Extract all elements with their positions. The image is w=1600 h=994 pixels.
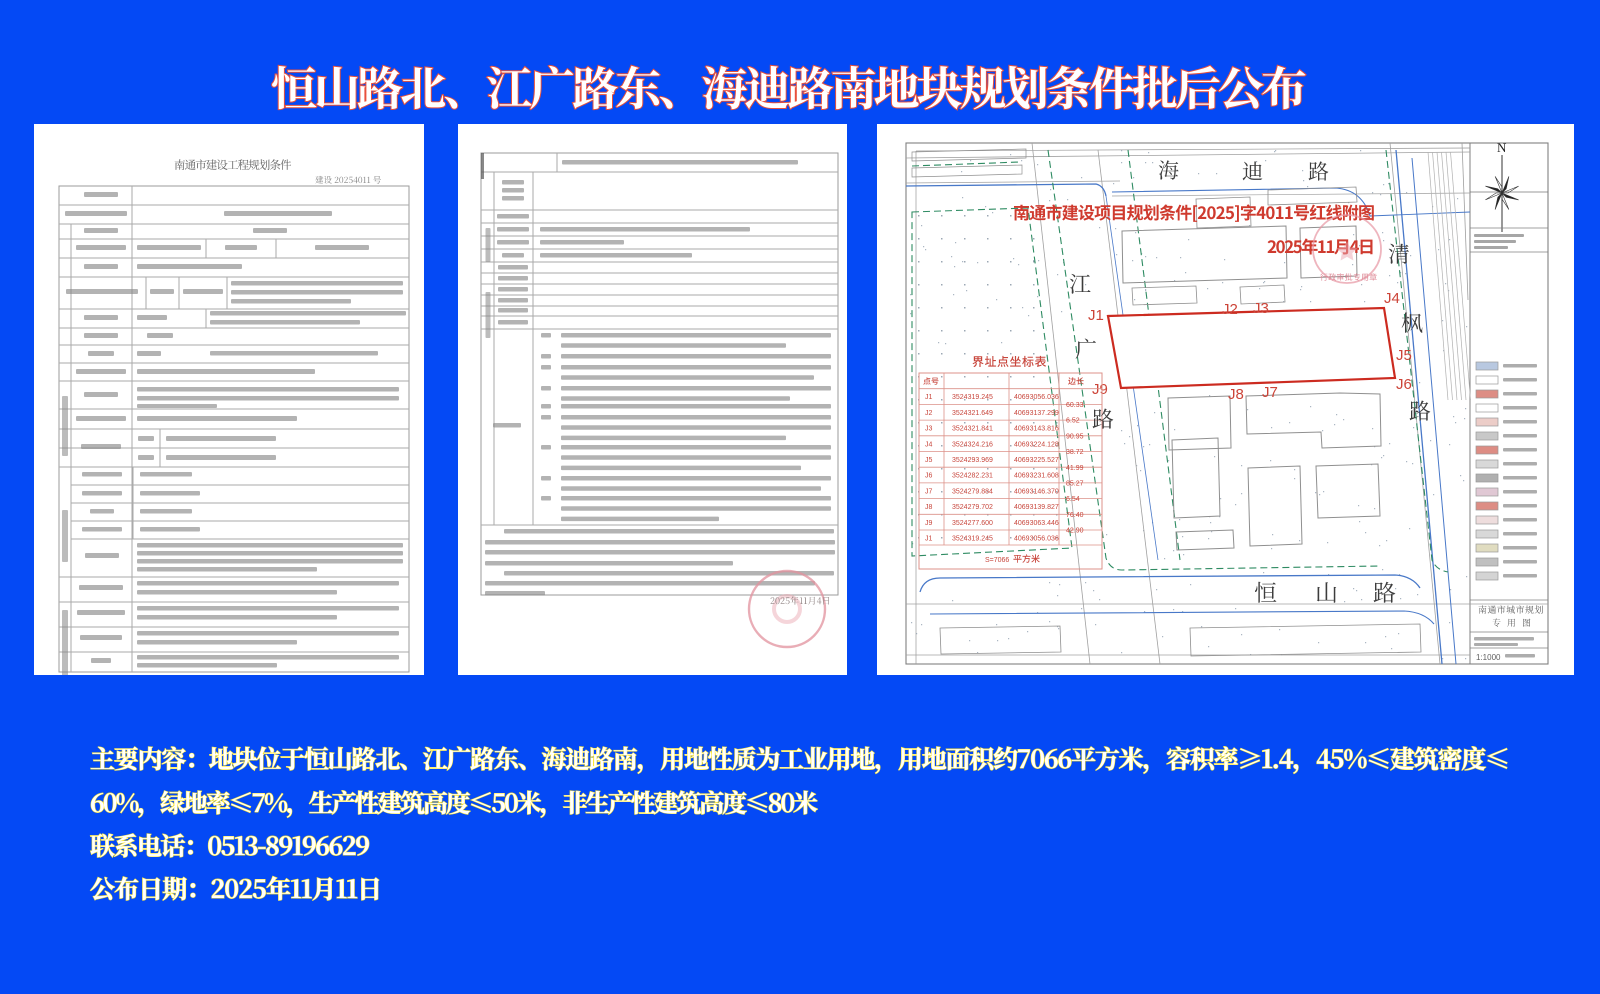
svg-text:40693225.527: 40693225.527: [1014, 457, 1059, 464]
svg-text:40693137.299: 40693137.299: [1014, 410, 1059, 417]
svg-text:J8: J8: [925, 504, 933, 511]
svg-text:3524277.600: 3524277.600: [952, 520, 993, 527]
svg-text:6.54: 6.54: [1066, 496, 1080, 503]
svg-text:3524279.884: 3524279.884: [952, 488, 993, 495]
svg-text:90.95: 90.95: [1066, 433, 1084, 440]
svg-text:40693056.036: 40693056.036: [1014, 536, 1059, 543]
svg-text:J5: J5: [1396, 347, 1412, 364]
svg-text:40693143.816: 40693143.816: [1014, 426, 1059, 433]
svg-text:40693139.827: 40693139.827: [1014, 504, 1059, 511]
svg-text:3524324.216: 3524324.216: [952, 441, 993, 448]
svg-text:40693224.128: 40693224.128: [1014, 441, 1059, 448]
svg-text:J8: J8: [1228, 386, 1244, 403]
svg-text:3524279.702: 3524279.702: [952, 504, 993, 511]
svg-text:J4: J4: [925, 441, 933, 448]
svg-text:J6: J6: [1396, 376, 1412, 393]
svg-text:41.99: 41.99: [1066, 465, 1084, 472]
svg-text:3524319.245: 3524319.245: [952, 536, 993, 543]
svg-text:40693056.036: 40693056.036: [1014, 394, 1059, 401]
svg-text:3524321.841: 3524321.841: [952, 426, 993, 433]
svg-text:J1: J1: [925, 394, 933, 401]
svg-text:40693063.446: 40693063.446: [1014, 520, 1059, 527]
svg-text:N: N: [1497, 140, 1507, 155]
svg-text:J5: J5: [925, 457, 933, 464]
svg-text:J1: J1: [925, 536, 933, 543]
svg-text:1:1000: 1:1000: [1476, 653, 1501, 662]
svg-text:3524321.649: 3524321.649: [952, 410, 993, 417]
svg-text:40693146.370: 40693146.370: [1014, 488, 1059, 495]
svg-text:60.33: 60.33: [1066, 402, 1084, 409]
svg-text:J2: J2: [925, 410, 933, 417]
svg-text:40693231.608: 40693231.608: [1014, 473, 1059, 480]
svg-text:J1: J1: [1088, 307, 1104, 324]
svg-text:3524282.231: 3524282.231: [952, 473, 993, 480]
svg-text:3524293.969: 3524293.969: [952, 457, 993, 464]
svg-text:6.52: 6.52: [1066, 418, 1080, 425]
svg-text:J9: J9: [1092, 381, 1108, 398]
svg-text:J6: J6: [925, 473, 933, 480]
svg-text:J9: J9: [925, 520, 933, 527]
svg-text:J7: J7: [925, 488, 933, 495]
svg-text:85.27: 85.27: [1066, 481, 1084, 488]
svg-text:38.72: 38.72: [1066, 449, 1084, 456]
svg-text:J3: J3: [925, 426, 933, 433]
svg-text:76.40: 76.40: [1066, 512, 1084, 519]
svg-text:S=7066: S=7066: [985, 557, 1009, 564]
svg-text:J3: J3: [1253, 300, 1269, 317]
svg-text:3524319.245: 3524319.245: [952, 394, 993, 401]
svg-text:J7: J7: [1262, 384, 1278, 401]
svg-text:J4: J4: [1384, 290, 1400, 307]
svg-text:J2: J2: [1222, 301, 1238, 318]
svg-text:42.90: 42.90: [1066, 528, 1084, 535]
